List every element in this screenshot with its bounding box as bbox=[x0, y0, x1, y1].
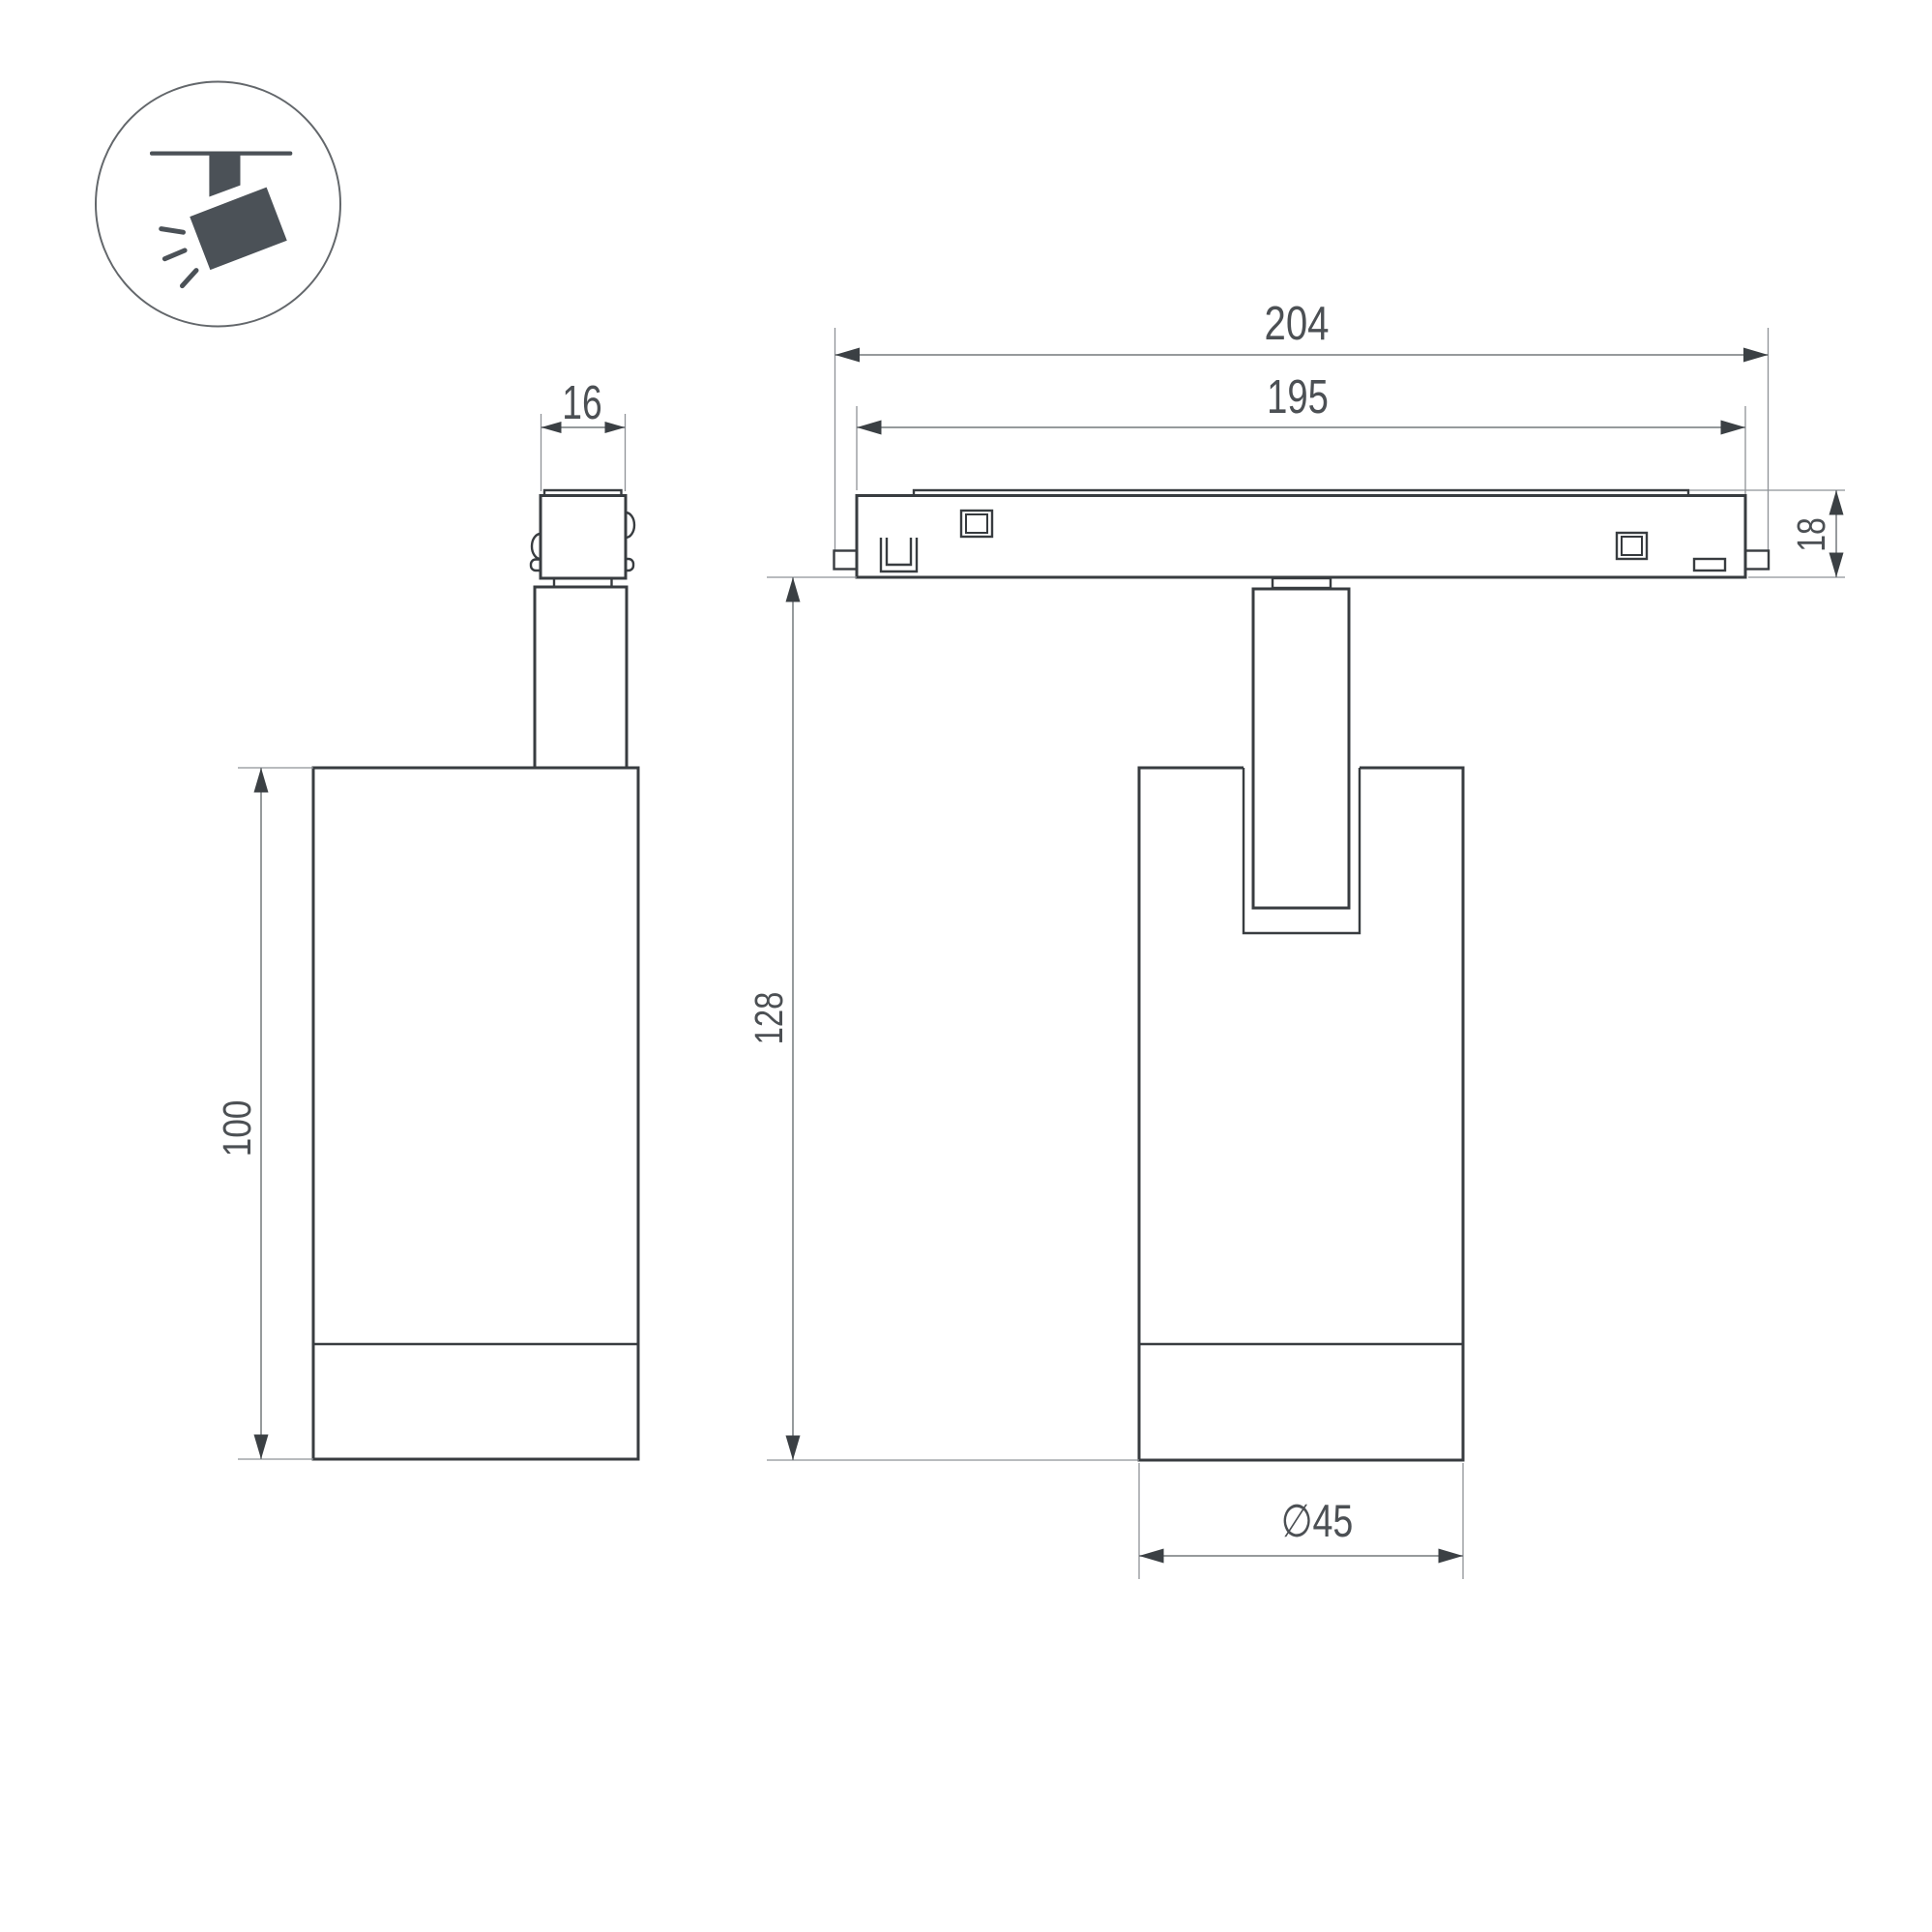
svg-text:16: 16 bbox=[562, 377, 601, 429]
svg-text:∅45: ∅45 bbox=[1281, 1496, 1354, 1547]
svg-text:100: 100 bbox=[216, 1100, 260, 1157]
svg-text:195: 195 bbox=[1267, 371, 1329, 424]
svg-text:128: 128 bbox=[746, 992, 790, 1045]
svg-text:204: 204 bbox=[1264, 297, 1329, 350]
svg-text:18: 18 bbox=[1789, 517, 1833, 552]
